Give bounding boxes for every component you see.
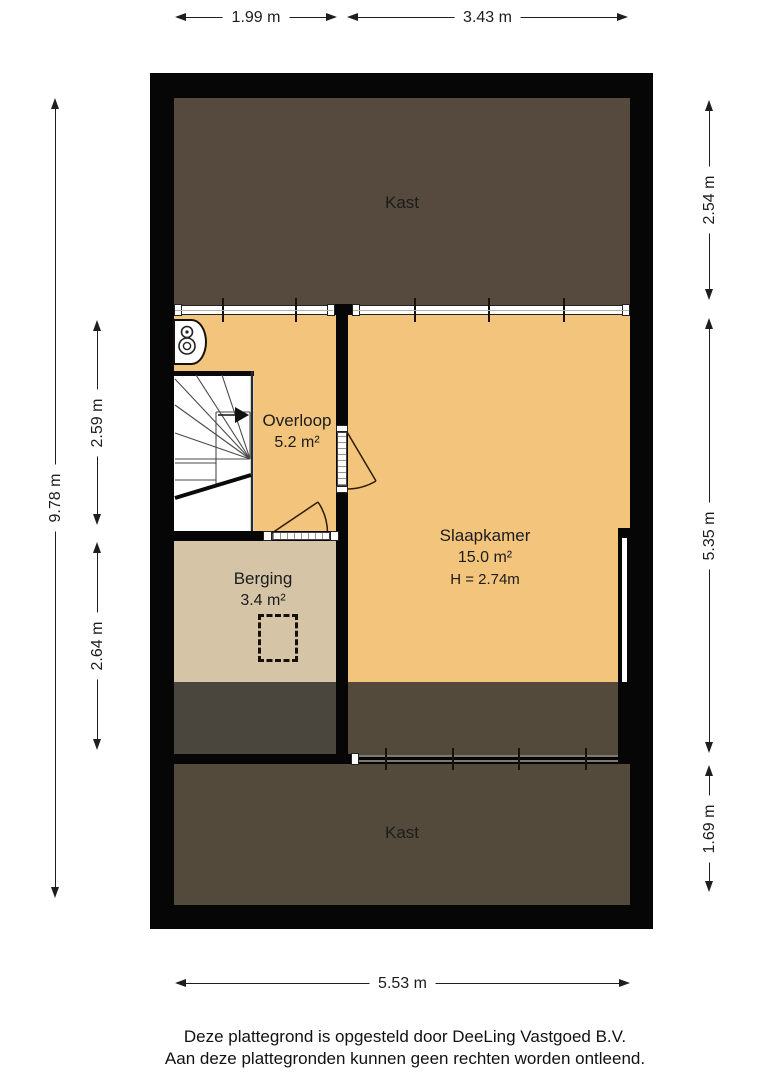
footer-line-2: Aan deze plattegronden kunnen geen recht…: [120, 1048, 690, 1070]
closet-partition-bottom: [352, 755, 618, 762]
partition-tick: [385, 748, 387, 770]
interior-wall-stub: [334, 304, 352, 315]
partition-jamb: [174, 304, 182, 316]
door-swing-icon: [265, 495, 337, 537]
label-kast-top: Kast: [385, 192, 419, 214]
label-kast-bottom: Kast: [385, 822, 419, 844]
label-slaapkamer: Slaapkamer 15.0 m² H = 2.74m: [440, 525, 531, 590]
door-swing-icon: [340, 423, 386, 495]
floorplan-page: 1.99 m 3.43 m 9.78 m 2.59 m 2.64 m 2.54 …: [0, 0, 764, 1080]
footer-disclaimer: Deze plattegrond is opgesteld door DeeLi…: [120, 1026, 690, 1070]
footer-line-1: Deze plattegrond is opgesteld door DeeLi…: [120, 1026, 690, 1048]
room-area: 15.0 m²: [440, 547, 531, 569]
closet-partition-top-left: [174, 305, 334, 315]
partition-tick: [222, 298, 224, 322]
label-overloop: Overloop 5.2 m²: [263, 410, 332, 454]
room-area: 3.4 m²: [234, 590, 293, 612]
dimension-label: 3.43 m: [454, 9, 521, 27]
room-ceiling-height: H = 2.74m: [440, 569, 531, 590]
room-area: 5.2 m²: [263, 432, 332, 454]
partition-jamb: [351, 753, 359, 765]
partition-tick: [585, 748, 587, 770]
partition-tick: [414, 298, 416, 322]
dimension-label: 9.78 m: [47, 465, 65, 532]
partition-jamb: [622, 304, 630, 316]
partition-jamb: [327, 304, 335, 316]
partition-tick: [563, 298, 565, 322]
zone-under-eaves-left: [174, 682, 336, 754]
boiler-icon: [173, 319, 207, 365]
room-name: Kast: [385, 192, 419, 214]
dimension-label: 2.54 m: [701, 167, 719, 234]
label-berging: Berging 3.4 m²: [234, 568, 293, 612]
dimension-label: 5.35 m: [701, 502, 719, 569]
room-name: Overloop: [263, 410, 332, 432]
room-name: Slaapkamer: [440, 525, 531, 547]
dimension-label: 2.59 m: [89, 389, 107, 456]
hatch-icon: [258, 614, 298, 662]
boiler-glyph: [175, 321, 205, 363]
zone-under-eaves-right: [348, 682, 630, 756]
staircase-drawing: [174, 371, 254, 531]
partition-jamb: [352, 304, 360, 316]
partition-tick: [518, 748, 520, 770]
room-name: Kast: [385, 822, 419, 844]
dimension-label: 1.99 m: [223, 9, 290, 27]
dimension-label: 5.53 m: [369, 975, 436, 993]
room-slaapkamer: [348, 314, 630, 682]
interior-wall-bottom-left: [174, 754, 352, 764]
dimension-label: 2.64 m: [89, 613, 107, 680]
partition-tick: [488, 298, 490, 322]
room-name: Berging: [234, 568, 293, 590]
dimension-label: 1.69 m: [701, 795, 719, 862]
staircase: [174, 371, 254, 531]
partition-tick: [295, 298, 297, 322]
wall-notch-lining: [622, 538, 627, 682]
closet-partition-top-right: [352, 305, 630, 315]
partition-tick: [452, 748, 454, 770]
